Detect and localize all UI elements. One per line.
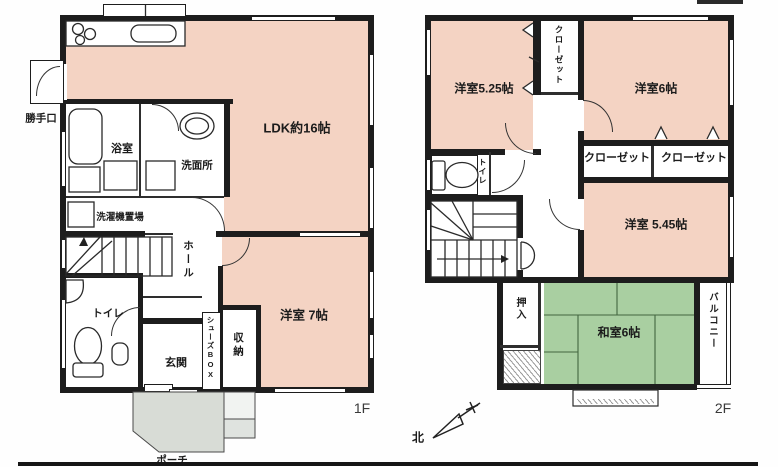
wall-segment bbox=[218, 266, 223, 305]
floor-plan-canvas: LDK約16帖 浴室 洗面所 洗濯機置場 ホール トイレ 玄関 シューズBOX … bbox=[0, 0, 778, 467]
room-label-oshiire: 押入 bbox=[512, 297, 527, 321]
north-label: 北 bbox=[412, 429, 424, 446]
wall-segment bbox=[578, 15, 584, 100]
window-marker bbox=[61, 132, 66, 186]
window-marker bbox=[426, 160, 431, 190]
wall-segment bbox=[578, 140, 734, 146]
balcony-rail bbox=[697, 384, 731, 389]
wall-segment bbox=[224, 99, 230, 197]
room-label-hall: ホール bbox=[181, 240, 196, 281]
room-label-ldk: LDK約16帖 bbox=[263, 118, 330, 137]
window-marker bbox=[275, 388, 345, 393]
sliding-door-marker bbox=[300, 232, 360, 237]
balcony-rail bbox=[726, 283, 731, 386]
window-marker bbox=[729, 197, 734, 257]
window-marker bbox=[426, 30, 431, 75]
window-marker bbox=[369, 335, 374, 358]
room-label-closet-upper: クローゼット bbox=[553, 25, 565, 85]
wall-segment bbox=[138, 318, 202, 324]
room-label-bedroom6: 洋室6帖 bbox=[635, 80, 678, 97]
room-label-toilet-2f: トイレ bbox=[477, 158, 488, 185]
room-label-bath: 浴室 bbox=[111, 140, 133, 156]
room-label-shoes-box: シューズBOX bbox=[205, 316, 216, 380]
window-marker bbox=[729, 40, 734, 105]
wall-segment bbox=[425, 195, 523, 201]
wall-segment bbox=[489, 152, 491, 195]
wall-segment bbox=[500, 345, 541, 348]
room-label-closet-right: クローゼット bbox=[661, 149, 727, 165]
bay-window-hatch bbox=[577, 399, 654, 404]
wall-segment bbox=[60, 99, 233, 104]
label-back-door: 勝手口 bbox=[25, 111, 57, 126]
wall-segment bbox=[578, 177, 734, 183]
window-marker bbox=[426, 210, 431, 250]
kitchen-bay-window bbox=[103, 4, 186, 17]
wall-segment bbox=[578, 230, 584, 283]
wall-segment bbox=[218, 305, 260, 310]
wall-segment bbox=[497, 384, 697, 390]
wall-segment bbox=[517, 201, 523, 238]
north-arrow-icon bbox=[433, 402, 480, 438]
room-label-balcony: バルコニー bbox=[705, 292, 719, 350]
floor2-tag: 2F bbox=[715, 400, 731, 416]
wall-segment bbox=[533, 21, 541, 95]
window-marker bbox=[369, 168, 374, 228]
wall-segment bbox=[541, 92, 578, 95]
room-label-toilet-1f: トイレ bbox=[92, 306, 124, 321]
room-label-bedroom7: 洋室 7帖 bbox=[280, 305, 328, 324]
wall-segment bbox=[139, 104, 141, 197]
window-marker bbox=[252, 16, 335, 21]
room-label-storage-1f: 収納 bbox=[231, 332, 246, 359]
toilet-compartment-2f bbox=[431, 155, 478, 195]
room-label-bedroom525: 洋室5.25帖 bbox=[454, 80, 513, 97]
room-label-tatami6: 和室6帖 bbox=[598, 324, 641, 341]
scan-artifact bbox=[18, 462, 758, 466]
room-label-closet-left: クローゼット bbox=[584, 149, 650, 165]
window-marker bbox=[61, 240, 66, 268]
wall-segment bbox=[60, 273, 143, 278]
porch-shape bbox=[133, 392, 255, 452]
window-marker bbox=[369, 272, 374, 318]
window-marker bbox=[633, 16, 708, 21]
storage-hatch-2f bbox=[503, 350, 541, 384]
scan-artifact bbox=[697, 0, 743, 4]
wall-segment bbox=[256, 305, 261, 387]
room-label-washroom: 洗面所 bbox=[181, 158, 213, 173]
entrance-door-panel bbox=[169, 389, 198, 397]
wall-segment bbox=[694, 283, 700, 384]
room-label-bedroom545: 洋室 5.45帖 bbox=[625, 216, 688, 233]
wall-segment bbox=[538, 283, 541, 350]
window-marker bbox=[369, 55, 374, 125]
window-marker bbox=[61, 300, 66, 368]
wall-segment bbox=[651, 146, 654, 177]
wall-segment bbox=[60, 231, 145, 237]
floor1-tag: 1F bbox=[354, 400, 370, 416]
wall-segment bbox=[145, 233, 173, 235]
room-label-entrance: 玄関 bbox=[165, 354, 187, 370]
wall-segment bbox=[425, 277, 503, 283]
entry-step-line bbox=[143, 296, 202, 298]
room-label-laundry: 洗濯機置場 bbox=[96, 209, 144, 223]
